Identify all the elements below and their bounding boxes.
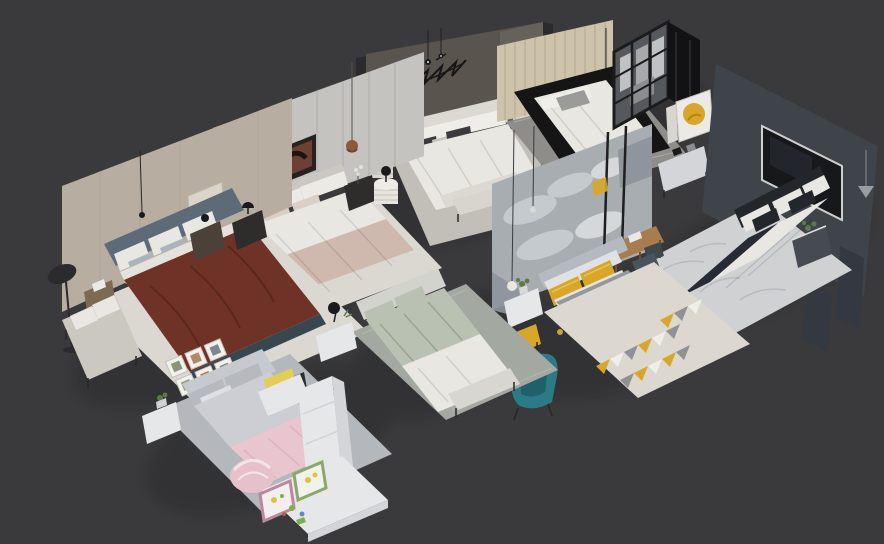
isometric-bedrooms-render xyxy=(0,0,884,544)
gold-decor xyxy=(557,329,563,335)
render-canvas xyxy=(0,0,884,544)
wall-panel xyxy=(836,246,864,330)
